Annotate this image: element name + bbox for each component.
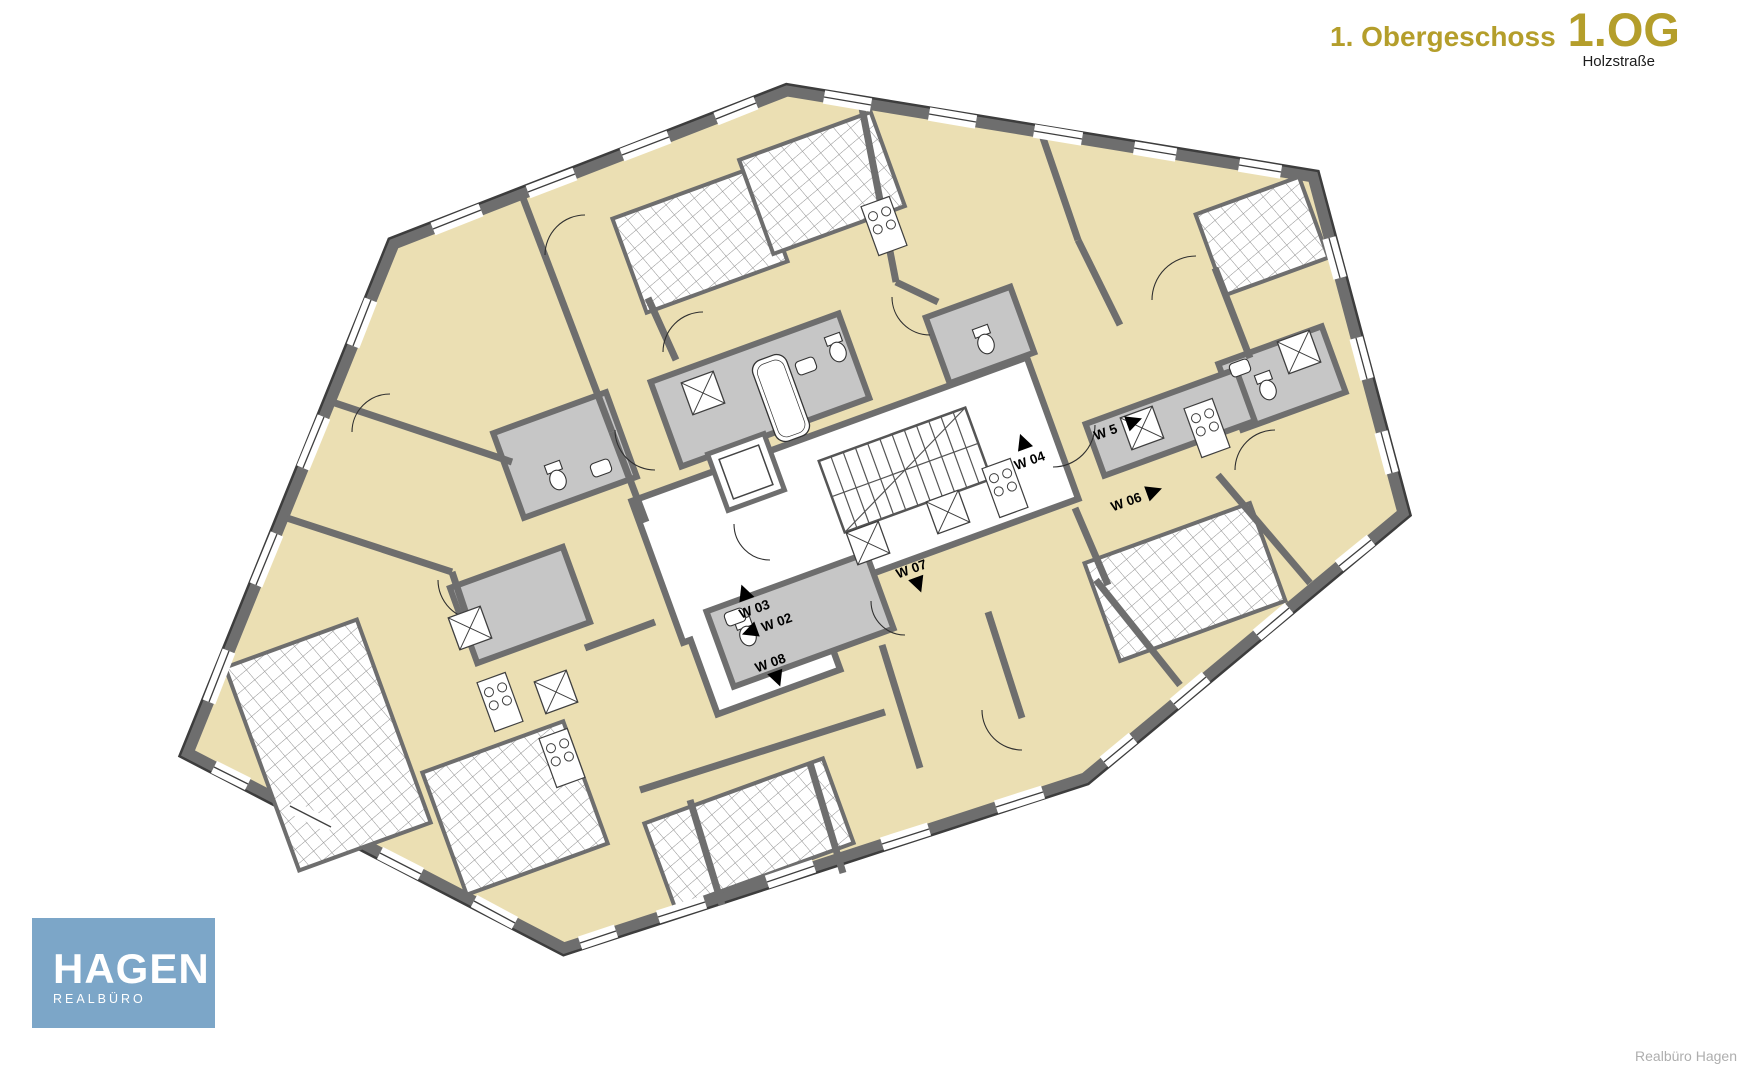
window — [824, 97, 871, 105]
window — [1134, 148, 1176, 155]
logo-name: HAGEN — [53, 948, 215, 990]
logo-subtitle: REALBÜRO — [53, 992, 215, 1006]
window — [1239, 165, 1281, 172]
window — [929, 114, 976, 122]
realburo-hagen-logo: HAGEN REALBÜRO — [32, 918, 215, 1028]
credit-text: Realbüro Hagen — [1635, 1048, 1737, 1064]
floor-plan: W 02 W 03 W 04 W 5 W 06 W 07 W 08 — [0, 0, 1751, 1080]
window — [1034, 131, 1082, 139]
